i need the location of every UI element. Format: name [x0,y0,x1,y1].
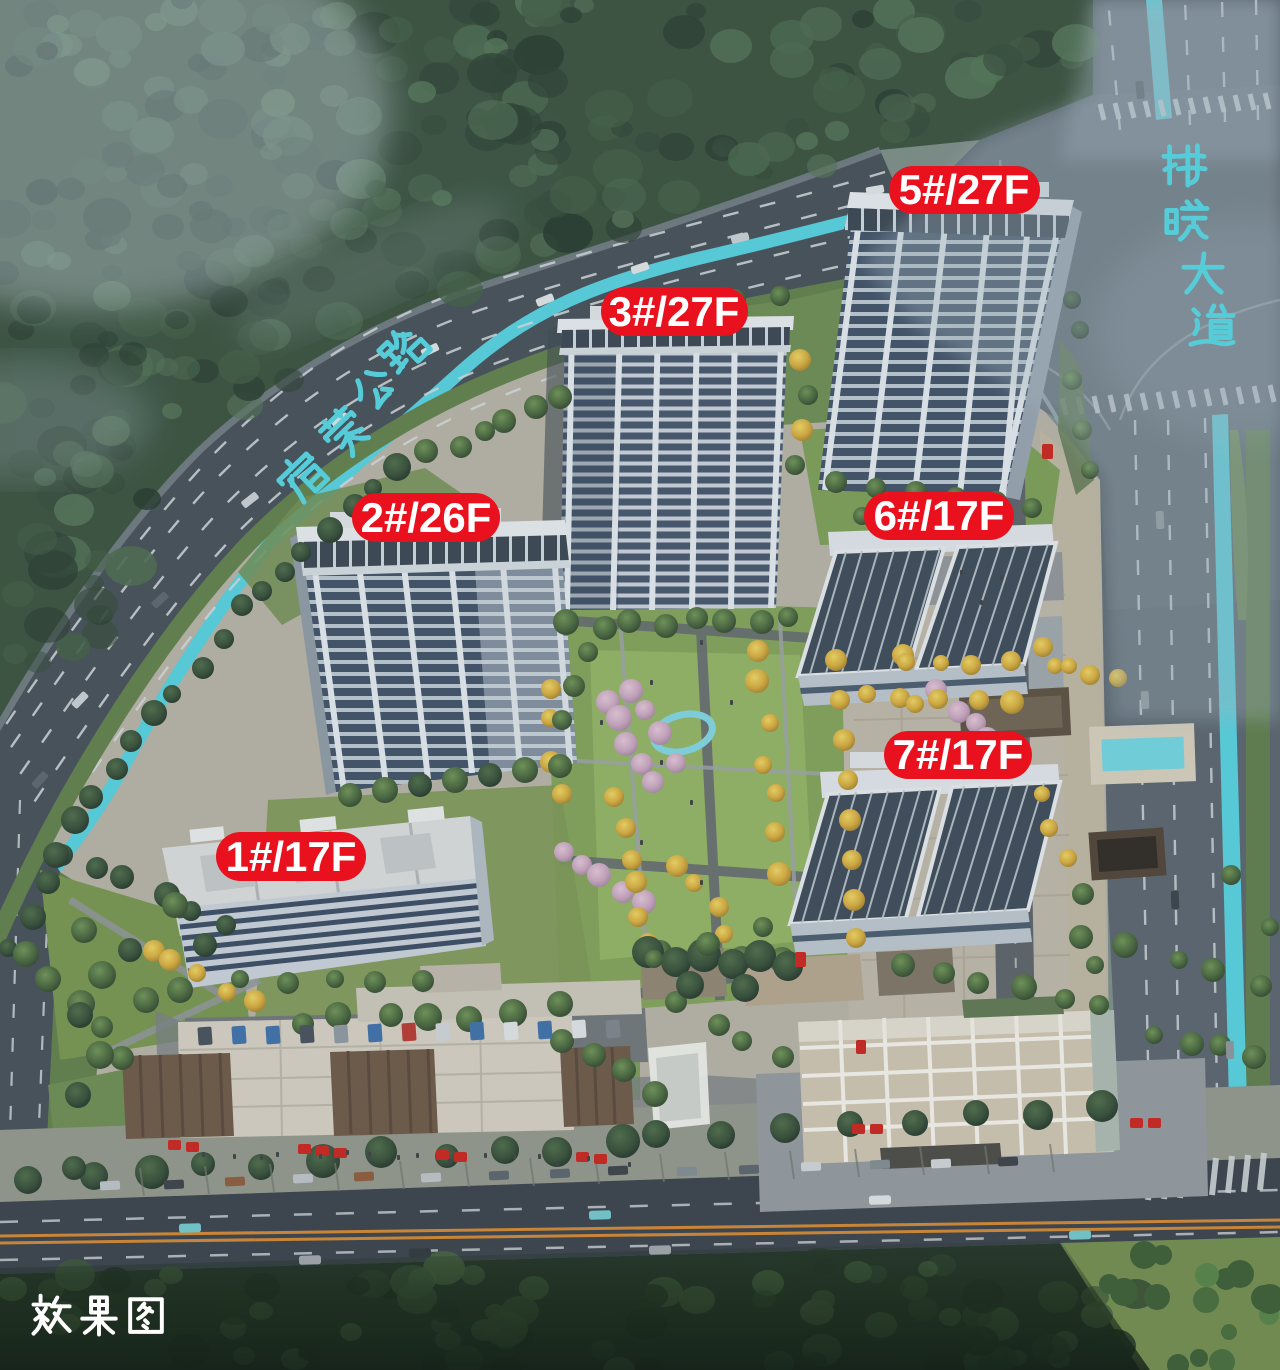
svg-text:1#/17F: 1#/17F [226,833,357,880]
svg-text:2#/26F: 2#/26F [361,494,492,541]
svg-text:5#/27F: 5#/27F [899,166,1030,213]
svg-text:6#/17F: 6#/17F [874,492,1005,539]
svg-text:7#/17F: 7#/17F [893,731,1024,778]
svg-text:3#/27F: 3#/27F [609,288,740,335]
